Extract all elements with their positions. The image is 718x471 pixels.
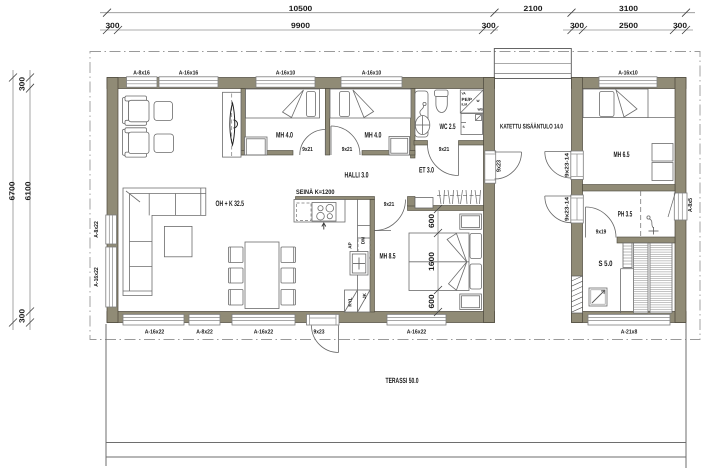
svg-text:JK: JK — [362, 292, 367, 299]
svg-text:10500: 10500 — [289, 4, 313, 13]
svg-text:OH + K 32.5: OH + K 32.5 — [216, 199, 245, 208]
svg-text:AP: AP — [348, 242, 353, 248]
svg-text:MH 8.5: MH 8.5 — [380, 252, 396, 261]
svg-text:A-8x16: A-8x16 — [133, 70, 150, 77]
svg-text:A-16x22: A-16x22 — [407, 329, 427, 336]
svg-text:A-16x22: A-16x22 — [254, 329, 274, 336]
svg-text:S: S — [463, 125, 465, 129]
svg-text:ET 3.0: ET 3.0 — [419, 166, 434, 175]
svg-text:9x23-14: 9x23-14 — [565, 153, 571, 177]
svg-text:W: W — [477, 99, 480, 103]
svg-text:300: 300 — [482, 21, 496, 30]
svg-text:DM: DM — [361, 237, 366, 244]
svg-text:300: 300 — [18, 309, 27, 323]
svg-text:A-16x10: A-16x10 — [618, 70, 638, 77]
svg-text:9x21: 9x21 — [342, 146, 353, 153]
svg-text:9x23: 9x23 — [496, 159, 503, 172]
svg-text:300: 300 — [673, 21, 687, 30]
svg-text:9x23: 9x23 — [314, 329, 326, 336]
svg-text:S 5.0: S 5.0 — [599, 259, 613, 268]
svg-text:A-8x5: A-8x5 — [687, 197, 694, 212]
svg-text:PH 3.5: PH 3.5 — [618, 210, 633, 219]
svg-text:1600: 1600 — [427, 252, 436, 271]
svg-text:SEINÄ K=1200: SEINÄ K=1200 — [296, 188, 335, 196]
svg-text:A-16x22: A-16x22 — [93, 267, 100, 287]
svg-text:9x21: 9x21 — [384, 201, 395, 208]
svg-text:A-8x22: A-8x22 — [196, 329, 213, 336]
svg-text:TERASSI 50.0: TERASSI 50.0 — [386, 376, 419, 385]
svg-text:9x23-14: 9x23-14 — [565, 197, 571, 221]
svg-text:300: 300 — [18, 77, 27, 91]
svg-text:PE/P: PE/P — [462, 97, 472, 102]
svg-text:MH 4.0: MH 4.0 — [276, 131, 293, 140]
svg-text:ILM: ILM — [462, 103, 468, 107]
svg-text:MH 4.0: MH 4.0 — [365, 131, 382, 140]
svg-text:VA: VA — [462, 92, 467, 96]
svg-text:2500: 2500 — [619, 21, 638, 30]
svg-text:A-21x8: A-21x8 — [621, 329, 638, 336]
svg-text:600: 600 — [427, 214, 436, 228]
svg-text:9900: 9900 — [291, 21, 310, 30]
svg-text:600: 600 — [427, 295, 436, 309]
svg-text:2100: 2100 — [524, 4, 543, 13]
svg-text:6700: 6700 — [8, 182, 17, 201]
svg-text:9x21: 9x21 — [302, 146, 313, 153]
svg-text:KATETTU SISÄÄNTULO 14.0: KATETTU SISÄÄNTULO 14.0 — [500, 123, 563, 131]
svg-text:WC 2.5: WC 2.5 — [440, 122, 456, 131]
svg-text:9x19: 9x19 — [596, 229, 607, 236]
svg-text:A-16x22: A-16x22 — [145, 329, 165, 336]
svg-text:3100: 3100 — [619, 4, 638, 13]
svg-text:A-8x22: A-8x22 — [93, 221, 100, 238]
svg-text:A-16x10: A-16x10 — [362, 70, 382, 77]
svg-text:KYL: KYL — [348, 297, 353, 306]
svg-text:A-16x16: A-16x16 — [179, 70, 199, 77]
svg-text:MH 6.5: MH 6.5 — [614, 150, 630, 159]
svg-text:A-16x10: A-16x10 — [276, 70, 296, 77]
svg-text:9x21: 9x21 — [439, 146, 450, 153]
svg-text:300: 300 — [570, 21, 584, 30]
svg-text:6100: 6100 — [24, 182, 33, 201]
svg-text:HALLI 3.0: HALLI 3.0 — [345, 171, 369, 180]
svg-text:WB: WB — [478, 108, 484, 112]
svg-text:300: 300 — [106, 21, 120, 30]
